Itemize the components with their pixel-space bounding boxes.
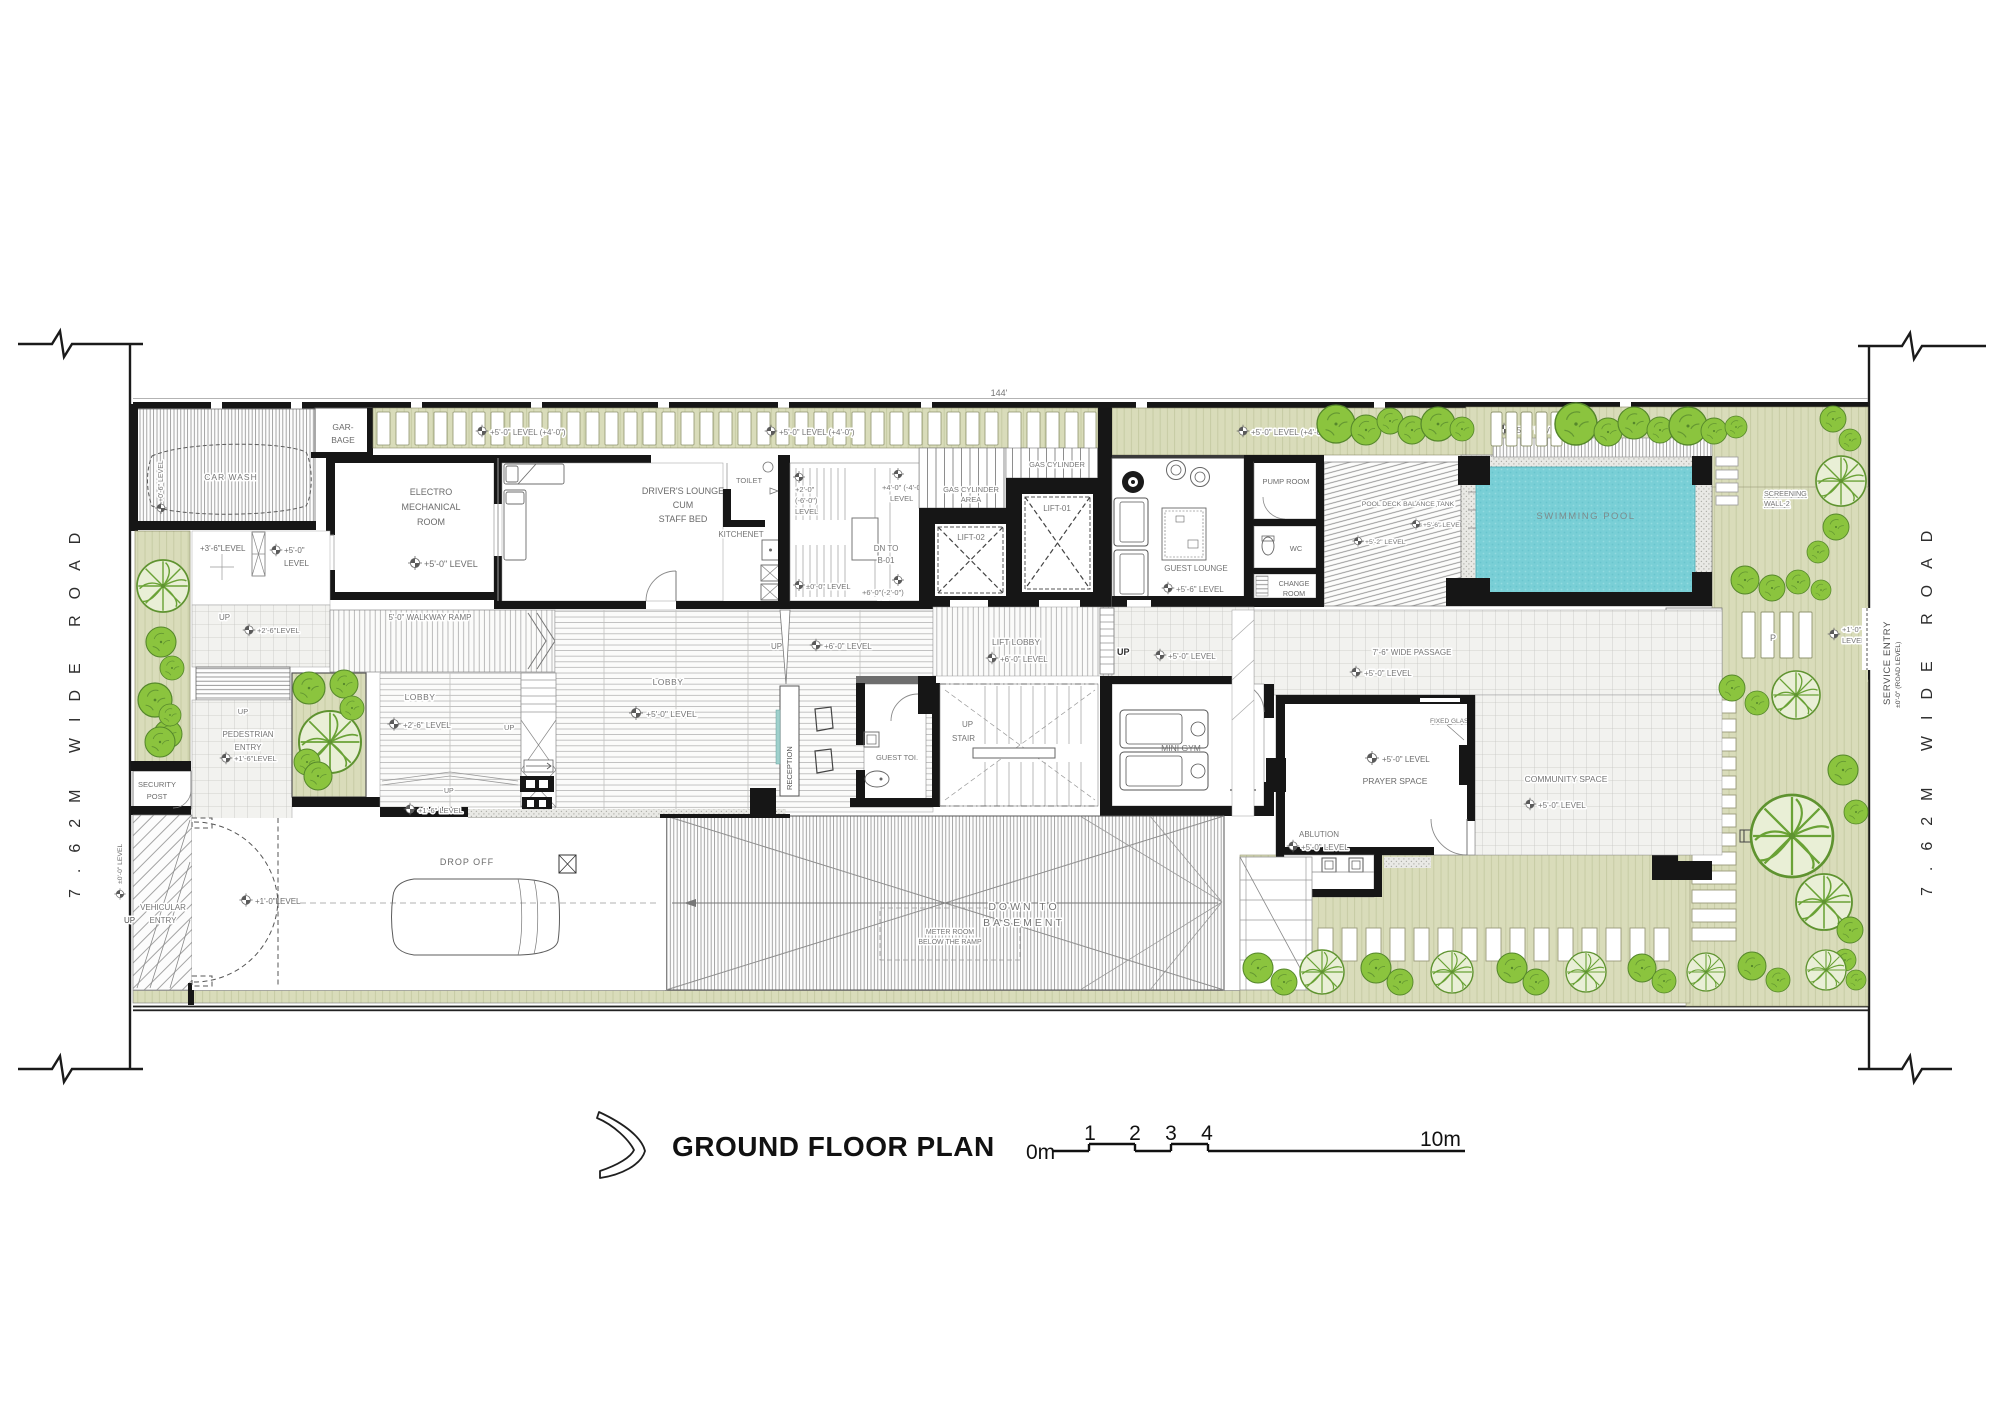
svg-text:UP: UP [219, 613, 230, 622]
svg-text:+5'-6" LEVEL: +5'-6" LEVEL [1176, 585, 1224, 594]
svg-text:7.62M WIDE ROAD: 7.62M WIDE ROAD [67, 517, 84, 898]
svg-text:±0'-0" LEVEL: ±0'-0" LEVEL [806, 582, 850, 591]
svg-text:+5'-0" LEVEL (+4'-0"): +5'-0" LEVEL (+4'-0") [779, 428, 855, 437]
svg-text:RECEPTION: RECEPTION [785, 746, 794, 790]
svg-text:ELECTRO: ELECTRO [410, 487, 453, 497]
svg-text:WC: WC [1290, 544, 1303, 553]
svg-text:ROOM: ROOM [417, 517, 445, 527]
svg-text:STAIR: STAIR [952, 734, 975, 743]
svg-text:DROP OFF: DROP OFF [440, 857, 494, 867]
svg-text:±0'-0" (ROAD LEVEL): ±0'-0" (ROAD LEVEL) [1895, 642, 1902, 708]
svg-text:VEHICULAR: VEHICULAR [140, 903, 186, 912]
svg-text:PUMP ROOM: PUMP ROOM [1263, 477, 1310, 486]
svg-text:10m: 10m [1420, 1128, 1461, 1151]
svg-text:BAGE: BAGE [331, 435, 355, 445]
svg-text:+1'-6" LEVEL: +1'-6" LEVEL [418, 806, 463, 815]
svg-text:ABLUTION: ABLUTION [1299, 830, 1339, 839]
svg-text:LOBBY: LOBBY [653, 677, 684, 687]
svg-text:TOILET: TOILET [736, 476, 763, 485]
svg-text:+5'-0" LEVEL: +5'-0" LEVEL [1301, 843, 1349, 852]
svg-text:PEDESTRIAN: PEDESTRIAN [222, 730, 273, 739]
svg-text:+0'-6" LEVEL: +0'-6" LEVEL [158, 460, 165, 502]
svg-text:7'-6" WIDE PASSAGE: 7'-6" WIDE PASSAGE [1373, 648, 1452, 657]
svg-text:±0'-0" LEVEL: ±0'-0" LEVEL [117, 843, 124, 884]
svg-text:+5'-0": +5'-0" [284, 546, 305, 555]
svg-text:FIXED GLASS: FIXED GLASS [1430, 718, 1473, 725]
svg-text:+1'-6"LEVEL: +1'-6"LEVEL [234, 754, 277, 763]
svg-text:AREA: AREA [961, 495, 981, 504]
svg-text:BASEMENT: BASEMENT [983, 917, 1065, 929]
svg-text:GAR-: GAR- [332, 422, 353, 432]
svg-text:LOBBY: LOBBY [405, 692, 436, 702]
svg-text:LEVEL: LEVEL [1842, 636, 1865, 645]
svg-text:ROOM: ROOM [1283, 589, 1305, 598]
svg-text:+6'-0" LEVEL: +6'-0" LEVEL [824, 642, 872, 651]
svg-text:+5'-0" LEVEL: +5'-0" LEVEL [424, 559, 478, 569]
svg-text:KITCHENET: KITCHENET [718, 530, 763, 539]
svg-text:7.62M WIDE ROAD: 7.62M WIDE ROAD [1919, 515, 1936, 896]
svg-text:CHANGE: CHANGE [1279, 579, 1310, 588]
svg-text:1: 1 [1084, 1122, 1096, 1145]
svg-text:+5'-0" LEVEL: +5'-0" LEVEL [1538, 801, 1586, 810]
svg-text:PRAYER SPACE: PRAYER SPACE [1363, 776, 1428, 786]
svg-text:SECURITY: SECURITY [138, 780, 176, 789]
svg-text:+5'-0" LEVEL: +5'-0" LEVEL [1364, 669, 1412, 678]
svg-text:+6'-0" LEVEL: +6'-0" LEVEL [1000, 655, 1048, 664]
svg-text:LEVEL: LEVEL [890, 494, 913, 503]
svg-text:CUM: CUM [673, 500, 694, 510]
svg-text:LIFT-01: LIFT-01 [1043, 504, 1071, 513]
svg-text:+5'-0" LEVEL (+4'-0"): +5'-0" LEVEL (+4'-0") [490, 428, 566, 437]
svg-text:STAFF BED: STAFF BED [659, 514, 708, 524]
svg-text:LEVEL: LEVEL [284, 559, 309, 568]
svg-text:MECHANICAL: MECHANICAL [401, 502, 460, 512]
svg-text:GAS CYLINDER: GAS CYLINDER [1029, 460, 1085, 469]
svg-text:(-6'-0"): (-6'-0") [795, 496, 818, 505]
svg-text:+1'-0": +1'-0" [1842, 625, 1862, 634]
svg-text:5'-0" WALKWAY RAMP: 5'-0" WALKWAY RAMP [388, 613, 471, 622]
svg-text:+2'-6" LEVEL: +2'-6" LEVEL [403, 721, 451, 730]
svg-text:+5'-0" LEVEL: +5'-0" LEVEL [1382, 755, 1430, 764]
svg-text:+5'-2" LEVEL: +5'-2" LEVEL [1365, 539, 1406, 546]
svg-text:GROUND FLOOR PLAN: GROUND FLOOR PLAN [672, 1131, 995, 1162]
svg-text:DRIVER'S LOUNGE: DRIVER'S LOUNGE [642, 486, 724, 496]
svg-text:+5'-0" LEVEL: +5'-0" LEVEL [1168, 652, 1216, 661]
svg-text:4: 4 [1201, 1122, 1213, 1145]
svg-text:DOWN TO: DOWN TO [988, 901, 1059, 913]
svg-text:SCREENING: SCREENING [1764, 489, 1807, 498]
svg-text:B-01: B-01 [878, 556, 895, 565]
svg-text:UP: UP [444, 788, 454, 795]
svg-text:COMMUNITY SPACE: COMMUNITY SPACE [1525, 774, 1608, 784]
svg-text:POOL DECK BALANCE TANK: POOL DECK BALANCE TANK [1362, 501, 1455, 508]
svg-text:SWIMMING POOL: SWIMMING POOL [1536, 511, 1635, 522]
svg-text:POST: POST [147, 792, 168, 801]
svg-text:UP: UP [1117, 647, 1130, 657]
svg-text:+5'-0" LEVEL (+4'-0"): +5'-0" LEVEL (+4'-0") [1251, 428, 1327, 437]
svg-text:UP: UP [124, 916, 135, 925]
svg-text:UP: UP [504, 723, 514, 732]
svg-text:LEVEL: LEVEL [795, 507, 818, 516]
svg-text:WALL-2: WALL-2 [1764, 499, 1790, 508]
svg-text:+5'-0" LEVEL: +5'-0" LEVEL [646, 709, 697, 719]
svg-text:LIFT LOBBY: LIFT LOBBY [992, 637, 1040, 647]
svg-text:SERVICE ENTRY: SERVICE ENTRY [1882, 621, 1893, 705]
svg-text:METER ROOM: METER ROOM [926, 929, 974, 936]
svg-text:+6'-0"(-2'-0"): +6'-0"(-2'-0") [862, 588, 904, 597]
svg-text:+2'-6"LEVEL: +2'-6"LEVEL [257, 626, 300, 635]
svg-text:CAR WASH: CAR WASH [204, 472, 258, 482]
svg-text:144': 144' [991, 388, 1008, 398]
svg-text:3: 3 [1165, 1122, 1177, 1145]
svg-text:+5'-6" LEVEL: +5'-6" LEVEL [1423, 522, 1464, 529]
svg-text:GUEST TOI.: GUEST TOI. [876, 753, 918, 762]
svg-text:DN TO: DN TO [874, 544, 899, 553]
svg-text:P: P [1770, 633, 1776, 643]
svg-text:2: 2 [1129, 1122, 1141, 1145]
svg-text:GAS CYLINDER: GAS CYLINDER [943, 485, 999, 494]
svg-text:LIFT-02: LIFT-02 [957, 533, 985, 542]
svg-text:UP: UP [238, 707, 248, 716]
svg-text:UP: UP [771, 642, 782, 651]
svg-text:BELOW THE RAMP: BELOW THE RAMP [918, 939, 982, 946]
svg-text:UP: UP [962, 720, 973, 729]
svg-text:GUEST LOUNGE: GUEST LOUNGE [1164, 564, 1227, 573]
svg-text:+2'-0": +2'-0" [795, 485, 815, 494]
svg-text:0m: 0m [1026, 1141, 1055, 1164]
svg-text:ENTRY: ENTRY [235, 743, 263, 752]
svg-text:+3'-6"LEVEL: +3'-6"LEVEL [200, 544, 246, 553]
svg-text:ENTRY: ENTRY [150, 916, 178, 925]
